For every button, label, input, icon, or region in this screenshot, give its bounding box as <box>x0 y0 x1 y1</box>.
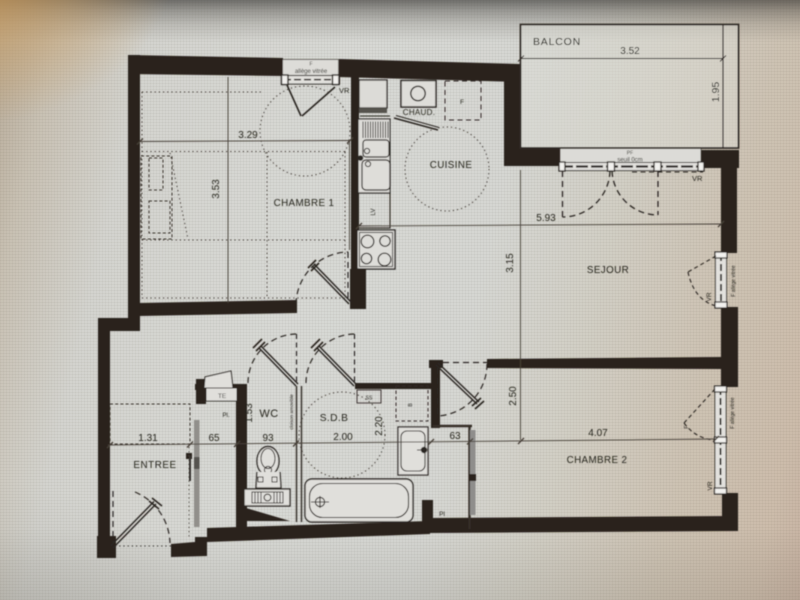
svg-text:63: 63 <box>449 431 461 442</box>
svg-text:65: 65 <box>208 433 220 444</box>
svg-text:F allège vitrée: F allège vitrée <box>730 397 736 429</box>
svg-text:93: 93 <box>262 433 274 444</box>
svg-text:allège vitrée: allège vitrée <box>295 69 328 75</box>
svg-text:CHAMBRE 2: CHAMBRE 2 <box>567 455 628 466</box>
svg-text:TE: TE <box>218 393 227 400</box>
svg-text:1.31: 1.31 <box>138 433 158 444</box>
svg-text:5.93: 5.93 <box>536 213 556 224</box>
svg-text:1.53: 1.53 <box>244 403 255 423</box>
svg-text:CHAMBRE 1: CHAMBRE 1 <box>274 198 335 209</box>
svg-text:VR: VR <box>707 481 714 490</box>
svg-text:SS: SS <box>366 396 373 402</box>
svg-text:F: F <box>460 99 464 106</box>
svg-text:2.00: 2.00 <box>333 432 353 443</box>
svg-text:F: F <box>684 425 690 429</box>
svg-text:3.15: 3.15 <box>505 253 516 273</box>
svg-text:VR: VR <box>706 292 713 301</box>
svg-text:3.29: 3.29 <box>238 130 258 141</box>
svg-text:Pl.: Pl. <box>222 413 229 419</box>
svg-text:CUISINE: CUISINE <box>430 160 473 171</box>
svg-text:4.07: 4.07 <box>588 428 608 439</box>
svg-text:B: B <box>408 403 414 407</box>
svg-text:WC: WC <box>259 408 278 420</box>
svg-text:BALCON: BALCON <box>533 36 581 48</box>
svg-text:ENTREE: ENTREE <box>133 460 176 471</box>
svg-text:2.20: 2.20 <box>374 416 385 436</box>
svg-text:VR: VR <box>692 174 703 183</box>
svg-text:PF: PF <box>627 151 633 157</box>
svg-text:SEJOUR: SEJOUR <box>587 265 629 276</box>
svg-text:VR: VR <box>339 86 350 95</box>
svg-text:1.95: 1.95 <box>710 82 722 103</box>
svg-text:3.52: 3.52 <box>620 46 640 57</box>
svg-text:cloison amovible: cloison amovible <box>289 394 295 430</box>
svg-text:S.D.B: S.D.B <box>320 413 349 424</box>
svg-text:F: F <box>309 62 312 68</box>
svg-text:LV: LV <box>371 209 377 216</box>
svg-text:Pl: Pl <box>439 511 445 518</box>
svg-text:F allège vitrée: F allège vitrée <box>731 265 737 297</box>
svg-text:CHAUD.: CHAUD. <box>403 108 435 117</box>
svg-text:2.50: 2.50 <box>508 386 519 406</box>
svg-text:3.53: 3.53 <box>211 179 222 199</box>
